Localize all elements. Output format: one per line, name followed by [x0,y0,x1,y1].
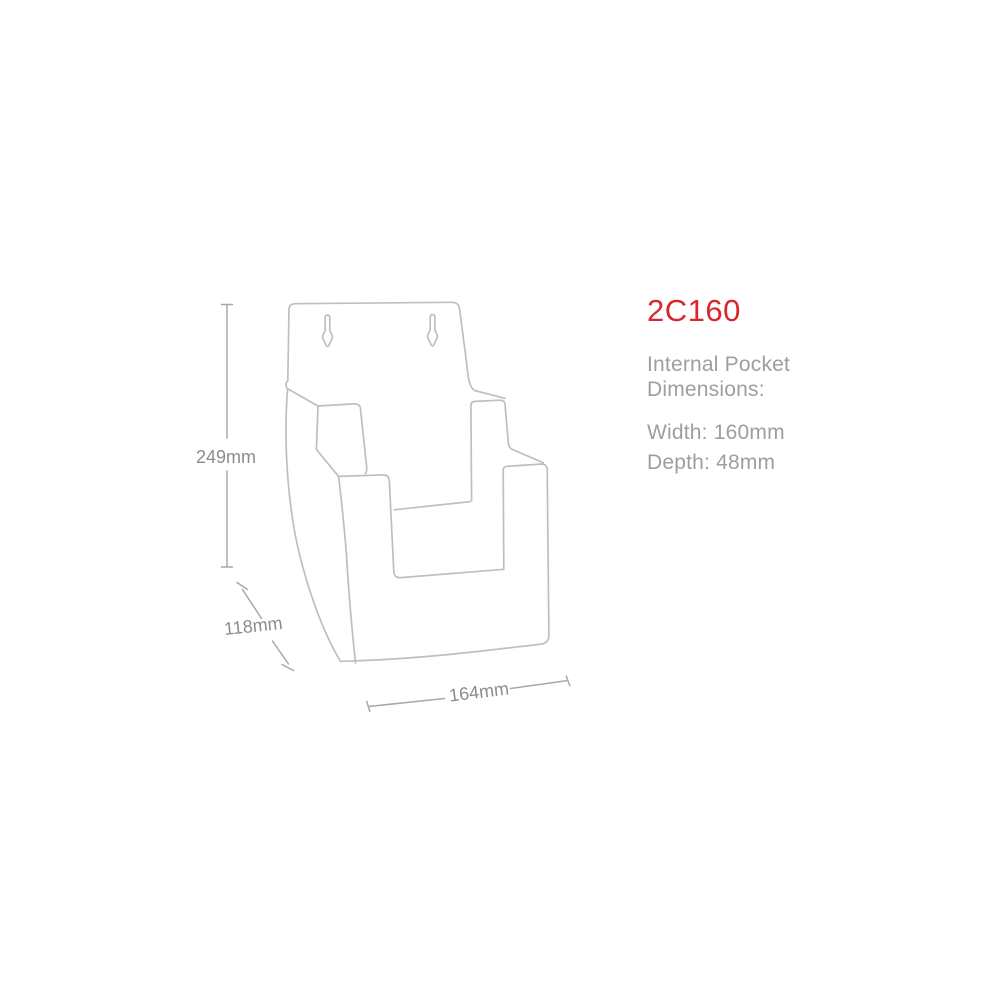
upper-pocket-left-wall [316,404,366,477]
lower-pocket-front-left-edge [339,476,356,662]
keyhole-slot-right-icon [428,315,438,347]
product-diagram-page: 249mm 118mm 164mm 2C160 Internal Pocket … [0,0,1000,1000]
height-dimension-line [222,305,233,568]
lower-pocket-outline [339,464,549,661]
product-line-drawing [0,0,1000,1000]
keyhole-slot-left-icon [323,315,333,347]
upper-pocket-front-bottom-edge [394,502,470,510]
upper-pocket-right-wall [471,400,543,501]
height-dimension-label: 249mm [196,447,256,468]
dimension-lines-group [222,305,570,712]
spec-width-value: Width: 160mm [647,421,785,445]
spec-depth-value: Depth: 48mm [647,451,775,475]
spec-heading-line1: Internal Pocket [647,353,790,377]
holder-outline-group [286,302,549,663]
product-code: 2C160 [647,293,741,329]
back-panel-outline [288,302,505,398]
spec-heading-line2: Dimensions: [647,378,765,402]
left-side-wall-top-edge [288,389,318,406]
left-side-panel-edge [286,381,341,661]
